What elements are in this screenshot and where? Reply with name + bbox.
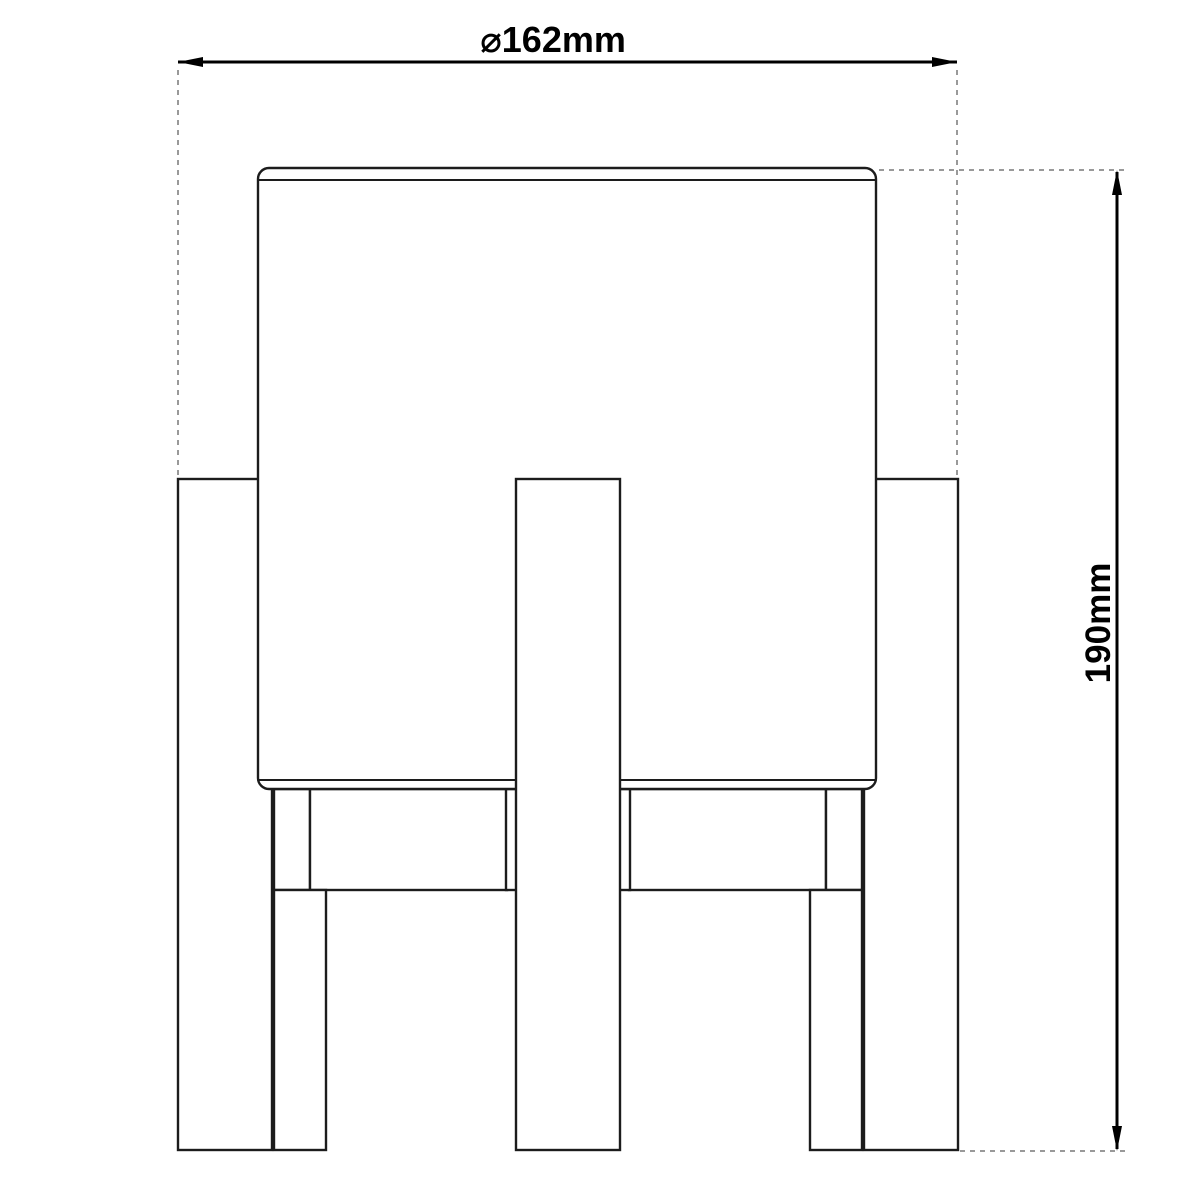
dimension-drawing-canvas: ⌀162mm 190mm — [0, 0, 1200, 1200]
width-dimension-label: ⌀162mm — [403, 20, 703, 60]
right-front-leg — [810, 890, 862, 1150]
right-outer-leg — [864, 479, 958, 1150]
left-rail — [310, 789, 507, 890]
left-front-leg — [274, 890, 326, 1150]
right-front-leg-upper — [826, 789, 862, 890]
left-front-leg-upper — [274, 789, 310, 890]
arrow-down-icon — [1112, 1126, 1122, 1151]
right-rail — [629, 789, 826, 890]
arrow-left-icon — [178, 57, 203, 67]
arrow-up-icon — [1112, 170, 1122, 195]
lamp-drawing — [178, 168, 958, 1150]
lamp-line-drawing — [0, 0, 1200, 1200]
center-front-leg — [516, 479, 620, 1150]
arrow-right-icon — [932, 57, 957, 67]
height-dimension-label: 190mm — [1079, 523, 1119, 723]
